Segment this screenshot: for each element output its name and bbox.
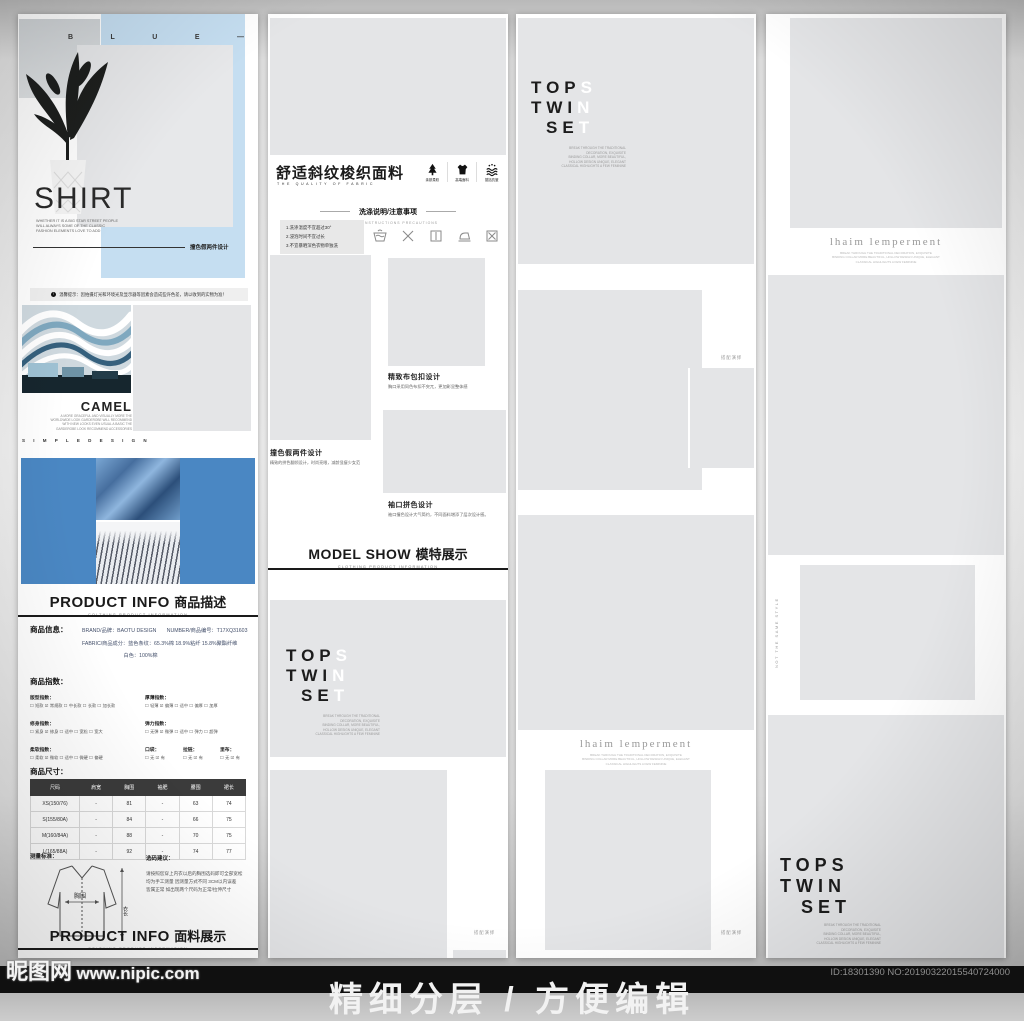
wash-notes: 1.洗涤温度不宜超过30° 2.浸泡时间不宜过长 3.不宜暴晒深色衣物单独洗 bbox=[280, 220, 364, 254]
size-cell: - bbox=[80, 844, 113, 860]
size-cell: - bbox=[146, 828, 179, 844]
index-group-title: 弹力指数： bbox=[145, 720, 218, 727]
decorative-line bbox=[426, 211, 456, 212]
blue-texture-photo bbox=[96, 458, 180, 520]
tops-caption: BREAK THROUGH THE TRADITIONAL DECORATION… bbox=[526, 146, 626, 169]
tree-icon bbox=[426, 162, 439, 177]
shirt-subtitle: WHETHER IT IS A BIG STAR STREET PEOPLE W… bbox=[36, 219, 118, 234]
heading-en: PRODUCT INFO bbox=[50, 928, 170, 945]
tops-row: SET bbox=[531, 118, 597, 138]
model-photo-placeholder bbox=[768, 275, 1004, 555]
size-cell: 81 bbox=[113, 796, 146, 812]
size-cell: 66 bbox=[179, 812, 212, 828]
info-label: 商品信息： bbox=[30, 624, 68, 635]
bottom-photo-placeholder bbox=[545, 770, 711, 950]
tops-row: TOPS bbox=[780, 855, 851, 876]
heading-en: PRODUCT INFO bbox=[50, 594, 170, 611]
fabric-title: 舒适斜纹梭织面料 bbox=[276, 162, 404, 183]
index-group: 口袋：☐ 无 ☑ 有 bbox=[145, 746, 165, 761]
tops-row: TWIN bbox=[780, 876, 851, 897]
panel-3-model-show: TOPS TWIN SET BREAK THROUGH THE TRADITIO… bbox=[516, 14, 756, 958]
heading-cn: 面料展示 bbox=[174, 929, 226, 944]
index-group-title: 拉链： bbox=[183, 746, 203, 753]
watermark-url: www.nipic.com bbox=[76, 964, 199, 983]
size-cell: 77 bbox=[212, 844, 245, 860]
index-group-options: ☐ 无 ☑ 有 bbox=[220, 755, 240, 761]
index-group-title: 厚薄指数： bbox=[145, 694, 218, 701]
detail-title: 撞色假两件设计 bbox=[270, 448, 323, 458]
tops-row: TOPS bbox=[531, 78, 597, 98]
feature-label: 亲肤柔软 bbox=[418, 177, 447, 182]
index-group-options: ☐ 无 ☑ 有 bbox=[145, 755, 165, 761]
nipic-watermark: 昵图网 www.nipic.com bbox=[6, 954, 200, 986]
section-rule bbox=[18, 615, 258, 617]
letter: E bbox=[195, 34, 200, 41]
heading-cn: 商品描述 bbox=[174, 595, 226, 610]
index-group-options: ☐ 轻薄 ☑ 偏薄 ☐ 适中 ☐ 偏厚 ☐ 加厚 bbox=[145, 703, 218, 709]
page: { "colors":{"accent_blue_light":"#c5def1… bbox=[0, 0, 1024, 993]
size-cell: 92 bbox=[113, 844, 146, 860]
tops-photo-placeholder: TOPS TWIN SET BREAK THROUGH THE TRADITIO… bbox=[270, 600, 506, 757]
tops-dark-letters: TOP bbox=[531, 78, 581, 97]
size-cell: 63 bbox=[179, 796, 212, 812]
index-group-options: ☐ 无 ☑ 有 bbox=[183, 755, 203, 761]
tops-light-letter: T bbox=[579, 118, 594, 137]
feature-icons: 亲肤柔软 高端面料 挺括抗皱 bbox=[418, 162, 506, 182]
detail-title: 袖口拼色设计 bbox=[388, 500, 433, 510]
tops-row: SET bbox=[780, 897, 851, 918]
photo-placeholder bbox=[270, 18, 506, 155]
size-table-row: L(165/88A)-92-7477 bbox=[31, 844, 246, 860]
feature-label: 高端面料 bbox=[448, 177, 477, 182]
section-rule bbox=[18, 948, 258, 950]
tops-photo-placeholder: TOPS TWIN SET BREAK THROUGH THE TRADITIO… bbox=[768, 715, 1004, 958]
lhaim-caption: BREAK THROUGH THE TRADITIONAL DECORATION… bbox=[516, 753, 756, 766]
watermark-site: 昵图网 bbox=[6, 959, 72, 984]
panel-4-outfit-show: lhaim lemperment BREAK THROUGH THE TRADI… bbox=[766, 14, 1006, 958]
letter: — bbox=[237, 34, 244, 41]
index-group-title: 版型指数： bbox=[30, 694, 115, 701]
feature-item: 高端面料 bbox=[448, 162, 478, 182]
tops-light-letter: S bbox=[336, 646, 352, 665]
info-lines: BRAND/品牌：BAOTU DESIGN NUMBER/商品编号：T17XQ3… bbox=[82, 625, 250, 663]
size-cell: 75 bbox=[212, 828, 245, 844]
vertical-caption: NOT THE SAME STYLE bbox=[774, 576, 779, 668]
tagline: 撞色假两件设计 bbox=[190, 243, 229, 251]
size-col-header: 肩宽 bbox=[80, 780, 113, 796]
size-col-header: 裙长 bbox=[212, 780, 245, 796]
feature-label: 挺括抗皱 bbox=[477, 177, 506, 182]
index-group-options: ☐ 无弹 ☑ 微弹 ☐ 适中 ☐ 弹力 ☐ 超弹 bbox=[145, 729, 218, 735]
index-group-title: 里布： bbox=[220, 746, 240, 753]
size-cell: - bbox=[146, 796, 179, 812]
wash-title: 洗涤说明/注意事项 bbox=[359, 209, 417, 216]
heading-cn: 模特展示 bbox=[416, 547, 468, 562]
size-table: 尺码 肩宽 胸围 袖肥 腰围 裙长 XS(150/76)-81-6374 S(1… bbox=[30, 779, 246, 860]
tops-dark-letters: TWI bbox=[286, 666, 332, 685]
length-label: 衣长 bbox=[122, 905, 128, 917]
camel-interior-photo bbox=[22, 305, 131, 393]
chest-label: 胸围 bbox=[74, 892, 86, 900]
top-photo-placeholder bbox=[790, 18, 1002, 228]
detail-desc: 胸口采用同色布扣不突兀，更加彰显整体感 bbox=[388, 384, 503, 390]
size-col-header: 尺码 bbox=[31, 780, 80, 796]
index-group-title: 修身指数： bbox=[30, 720, 103, 727]
size-cell: 75 bbox=[212, 812, 245, 828]
detail-desc: 精致的拼色翻领设计，时尚亮眼，减龄显瘦少女范 bbox=[270, 460, 380, 466]
index-group: 柔软指数：☐ 柔软 ☑ 微软 ☐ 适中 ☐ 微硬 ☐ 偏硬 bbox=[30, 746, 103, 761]
iron-icon bbox=[456, 228, 472, 244]
panel-2-fabric-details: 舒适斜纹梭织面料 THE QUALITY OF FABRIC 亲肤柔软 高端面料… bbox=[268, 14, 508, 958]
no-tumble-dry-icon bbox=[484, 228, 500, 244]
model-show-heading: MODEL SHOW 模特展示 CLOTHING PRODUCT INFORMA… bbox=[268, 544, 508, 569]
notice-bar: ! 温馨提示：因拍摄灯光和环境光及显示器等因素会造成些许色差，请以收到的实物为准… bbox=[30, 288, 248, 301]
measure-label: 测量标准： bbox=[30, 852, 58, 860]
notice-text: 温馨提示：因拍摄灯光和环境光及显示器等因素会造成些许色差，请以收到的实物为准！ bbox=[59, 292, 227, 298]
tops-row: SET bbox=[286, 686, 352, 706]
size-cell: - bbox=[80, 796, 113, 812]
fabric-subtitle: THE QUALITY OF FABRIC bbox=[277, 182, 375, 186]
tops-twin-set-block: TOPS TWIN SET bbox=[286, 646, 352, 706]
tops-twin-set-dark-block: TOPS TWIN SET bbox=[780, 855, 851, 918]
index-group: 弹力指数：☐ 无弹 ☑ 微弹 ☐ 适中 ☐ 弹力 ☐ 超弹 bbox=[145, 720, 218, 735]
detail-photo-placeholder bbox=[388, 258, 485, 366]
index-group: 厚薄指数：☐ 轻薄 ☑ 偏薄 ☐ 适中 ☐ 偏厚 ☐ 加厚 bbox=[145, 694, 218, 709]
section-rule bbox=[268, 568, 508, 570]
shirt-title: SHIRT bbox=[34, 182, 133, 216]
no-bleach-icon bbox=[400, 228, 416, 244]
tops-light-letter: N bbox=[577, 98, 594, 117]
tagline-rule bbox=[33, 247, 185, 248]
exclamation-icon: ! bbox=[51, 292, 56, 297]
match-label: 搭配演绎 bbox=[474, 930, 495, 936]
letter: U bbox=[152, 34, 157, 41]
size-cell: 74 bbox=[212, 796, 245, 812]
index-label: 商品指数： bbox=[30, 676, 68, 687]
tops-dark-letters: TWI bbox=[531, 98, 577, 117]
size-cell: - bbox=[80, 812, 113, 828]
tops-row: TOPS bbox=[286, 646, 352, 666]
panel-1-shirt-info: B L U E — SHIRT WHETHER IT IS A BIG STAR… bbox=[18, 14, 258, 958]
tops-caption: BREAK THROUGH THE TRADITIONAL DECORATION… bbox=[776, 923, 881, 946]
bottom-photo-placeholder bbox=[270, 770, 447, 958]
size-table-row: XS(150/76)-81-6374 bbox=[31, 796, 246, 812]
tops-light-letter: S bbox=[581, 78, 597, 97]
size-col-header: 袖肥 bbox=[146, 780, 179, 796]
model-photo-placeholder bbox=[518, 515, 754, 730]
detail-photo-placeholder bbox=[270, 255, 371, 440]
tops-row: TWIN bbox=[286, 666, 352, 686]
side-photo-placeholder bbox=[688, 368, 754, 468]
tops-row: TWIN bbox=[531, 98, 597, 118]
camel-photo-placeholder bbox=[133, 305, 251, 431]
tops-twin-set-block: TOPS TWIN SET bbox=[531, 78, 597, 138]
index-group: 版型指数：☐ 短款 ☑ 常规款 ☐ 中长款 ☐ 长款 ☐ 加长款 bbox=[30, 694, 115, 709]
size-cell: 74 bbox=[179, 844, 212, 860]
tshirt-icon bbox=[456, 162, 469, 177]
heading-en: MODEL SHOW bbox=[308, 546, 411, 562]
tops-light-letter: N bbox=[332, 666, 349, 685]
handwash-icon bbox=[372, 228, 388, 244]
size-cell: 70 bbox=[179, 828, 212, 844]
simple-design-label: S I M P L E D E S I G N bbox=[22, 438, 150, 443]
index-group-title: 柔软指数： bbox=[30, 746, 103, 753]
suggest-label: 选码建议： bbox=[146, 854, 174, 862]
size-cell: 88 bbox=[113, 828, 146, 844]
tops-dark-letters: SE bbox=[301, 686, 334, 705]
size-label: 商品尺寸： bbox=[30, 766, 68, 777]
photo-highlight bbox=[96, 522, 180, 544]
index-group: 里布：☐ 无 ☑ 有 bbox=[220, 746, 240, 761]
index-group-title: 口袋： bbox=[145, 746, 165, 753]
detail-title: 精致布包扣设计 bbox=[388, 372, 441, 382]
model-photo-placeholder bbox=[518, 290, 702, 490]
product-info-heading: PRODUCT INFO 商品描述 COLTHING PRODUCT INFOR… bbox=[18, 592, 258, 617]
match-label: 搭配演绎 bbox=[721, 930, 742, 936]
size-table-row: S(155/80A)-84-6675 bbox=[31, 812, 246, 828]
blue-banner bbox=[21, 458, 255, 584]
detail-desc: 袖口撞色设计大气简约，不同面料增添了层次设计感。 bbox=[388, 512, 506, 518]
detail-photo-placeholder bbox=[383, 410, 506, 493]
size-table-header-row: 尺码 肩宽 胸围 袖肥 腰围 裙长 bbox=[31, 780, 246, 796]
wash-icons bbox=[372, 228, 500, 244]
match-label: 搭配演绎 bbox=[721, 355, 742, 361]
size-cell: - bbox=[146, 812, 179, 828]
feature-item: 挺括抗皱 bbox=[477, 162, 506, 182]
feature-item: 亲肤柔软 bbox=[418, 162, 448, 182]
index-group-options: ☐ 柔软 ☑ 微软 ☐ 适中 ☐ 微硬 ☐ 偏硬 bbox=[30, 755, 103, 761]
index-group-options: ☐ 紧身 ☑ 修身 ☐ 适中 ☐ 宽松 ☐ 宽大 bbox=[30, 729, 103, 735]
index-group-options: ☐ 短款 ☑ 常规款 ☐ 中长款 ☐ 长款 ☐ 加长款 bbox=[30, 703, 115, 709]
size-cell: M(160/84A) bbox=[31, 828, 80, 844]
size-table-row: M(160/84A)-88-7075 bbox=[31, 828, 246, 844]
size-col-header: 胸围 bbox=[113, 780, 146, 796]
image-id-watermark: ID:18301390 NO:20190322015540724000 bbox=[830, 967, 1010, 978]
decorative-line bbox=[320, 211, 350, 212]
small-photo-placeholder bbox=[453, 950, 506, 958]
size-cell: 84 bbox=[113, 812, 146, 828]
tops-dark-letters: SE bbox=[546, 118, 579, 137]
lhaim-title: lhaim lemperment bbox=[766, 236, 1006, 248]
tops-dark-letters: TOP bbox=[286, 646, 336, 665]
tops-photo-placeholder: TOPS TWIN SET BREAK THROUGH THE TRADITIO… bbox=[518, 18, 754, 264]
index-group: 拉链：☐ 无 ☑ 有 bbox=[183, 746, 203, 761]
lhaim-caption: BREAK THROUGH THE TRADITIONAL DECORATION… bbox=[766, 251, 1006, 264]
index-group: 修身指数：☐ 紧身 ☑ 修身 ☐ 适中 ☐ 宽松 ☐ 宽大 bbox=[30, 720, 103, 735]
size-cell: - bbox=[80, 828, 113, 844]
camel-title: CAMEL bbox=[48, 399, 132, 414]
camel-subtitle: A MORE GRACEFUL AND VISUALLY MORE THE WO… bbox=[28, 414, 132, 431]
drip-dry-icon bbox=[428, 228, 444, 244]
tops-caption: BREAK THROUGH THE TRADITIONAL DECORATION… bbox=[280, 714, 380, 737]
lhaim-title: lhaim lemperment bbox=[516, 738, 756, 750]
side-photo-placeholder bbox=[800, 565, 975, 700]
striped-fabric-photo bbox=[96, 522, 180, 584]
suggest-text: 请按照您穿上内衣以后的胸围选码即可全部宽松 均为手工测量 因测量方式不同 3CM… bbox=[146, 870, 248, 894]
size-col-header: 腰围 bbox=[179, 780, 212, 796]
size-cell: S(155/80A) bbox=[31, 812, 80, 828]
tops-light-letter: T bbox=[334, 686, 349, 705]
size-cell: XS(150/76) bbox=[31, 796, 80, 812]
wave-icon bbox=[485, 162, 499, 177]
